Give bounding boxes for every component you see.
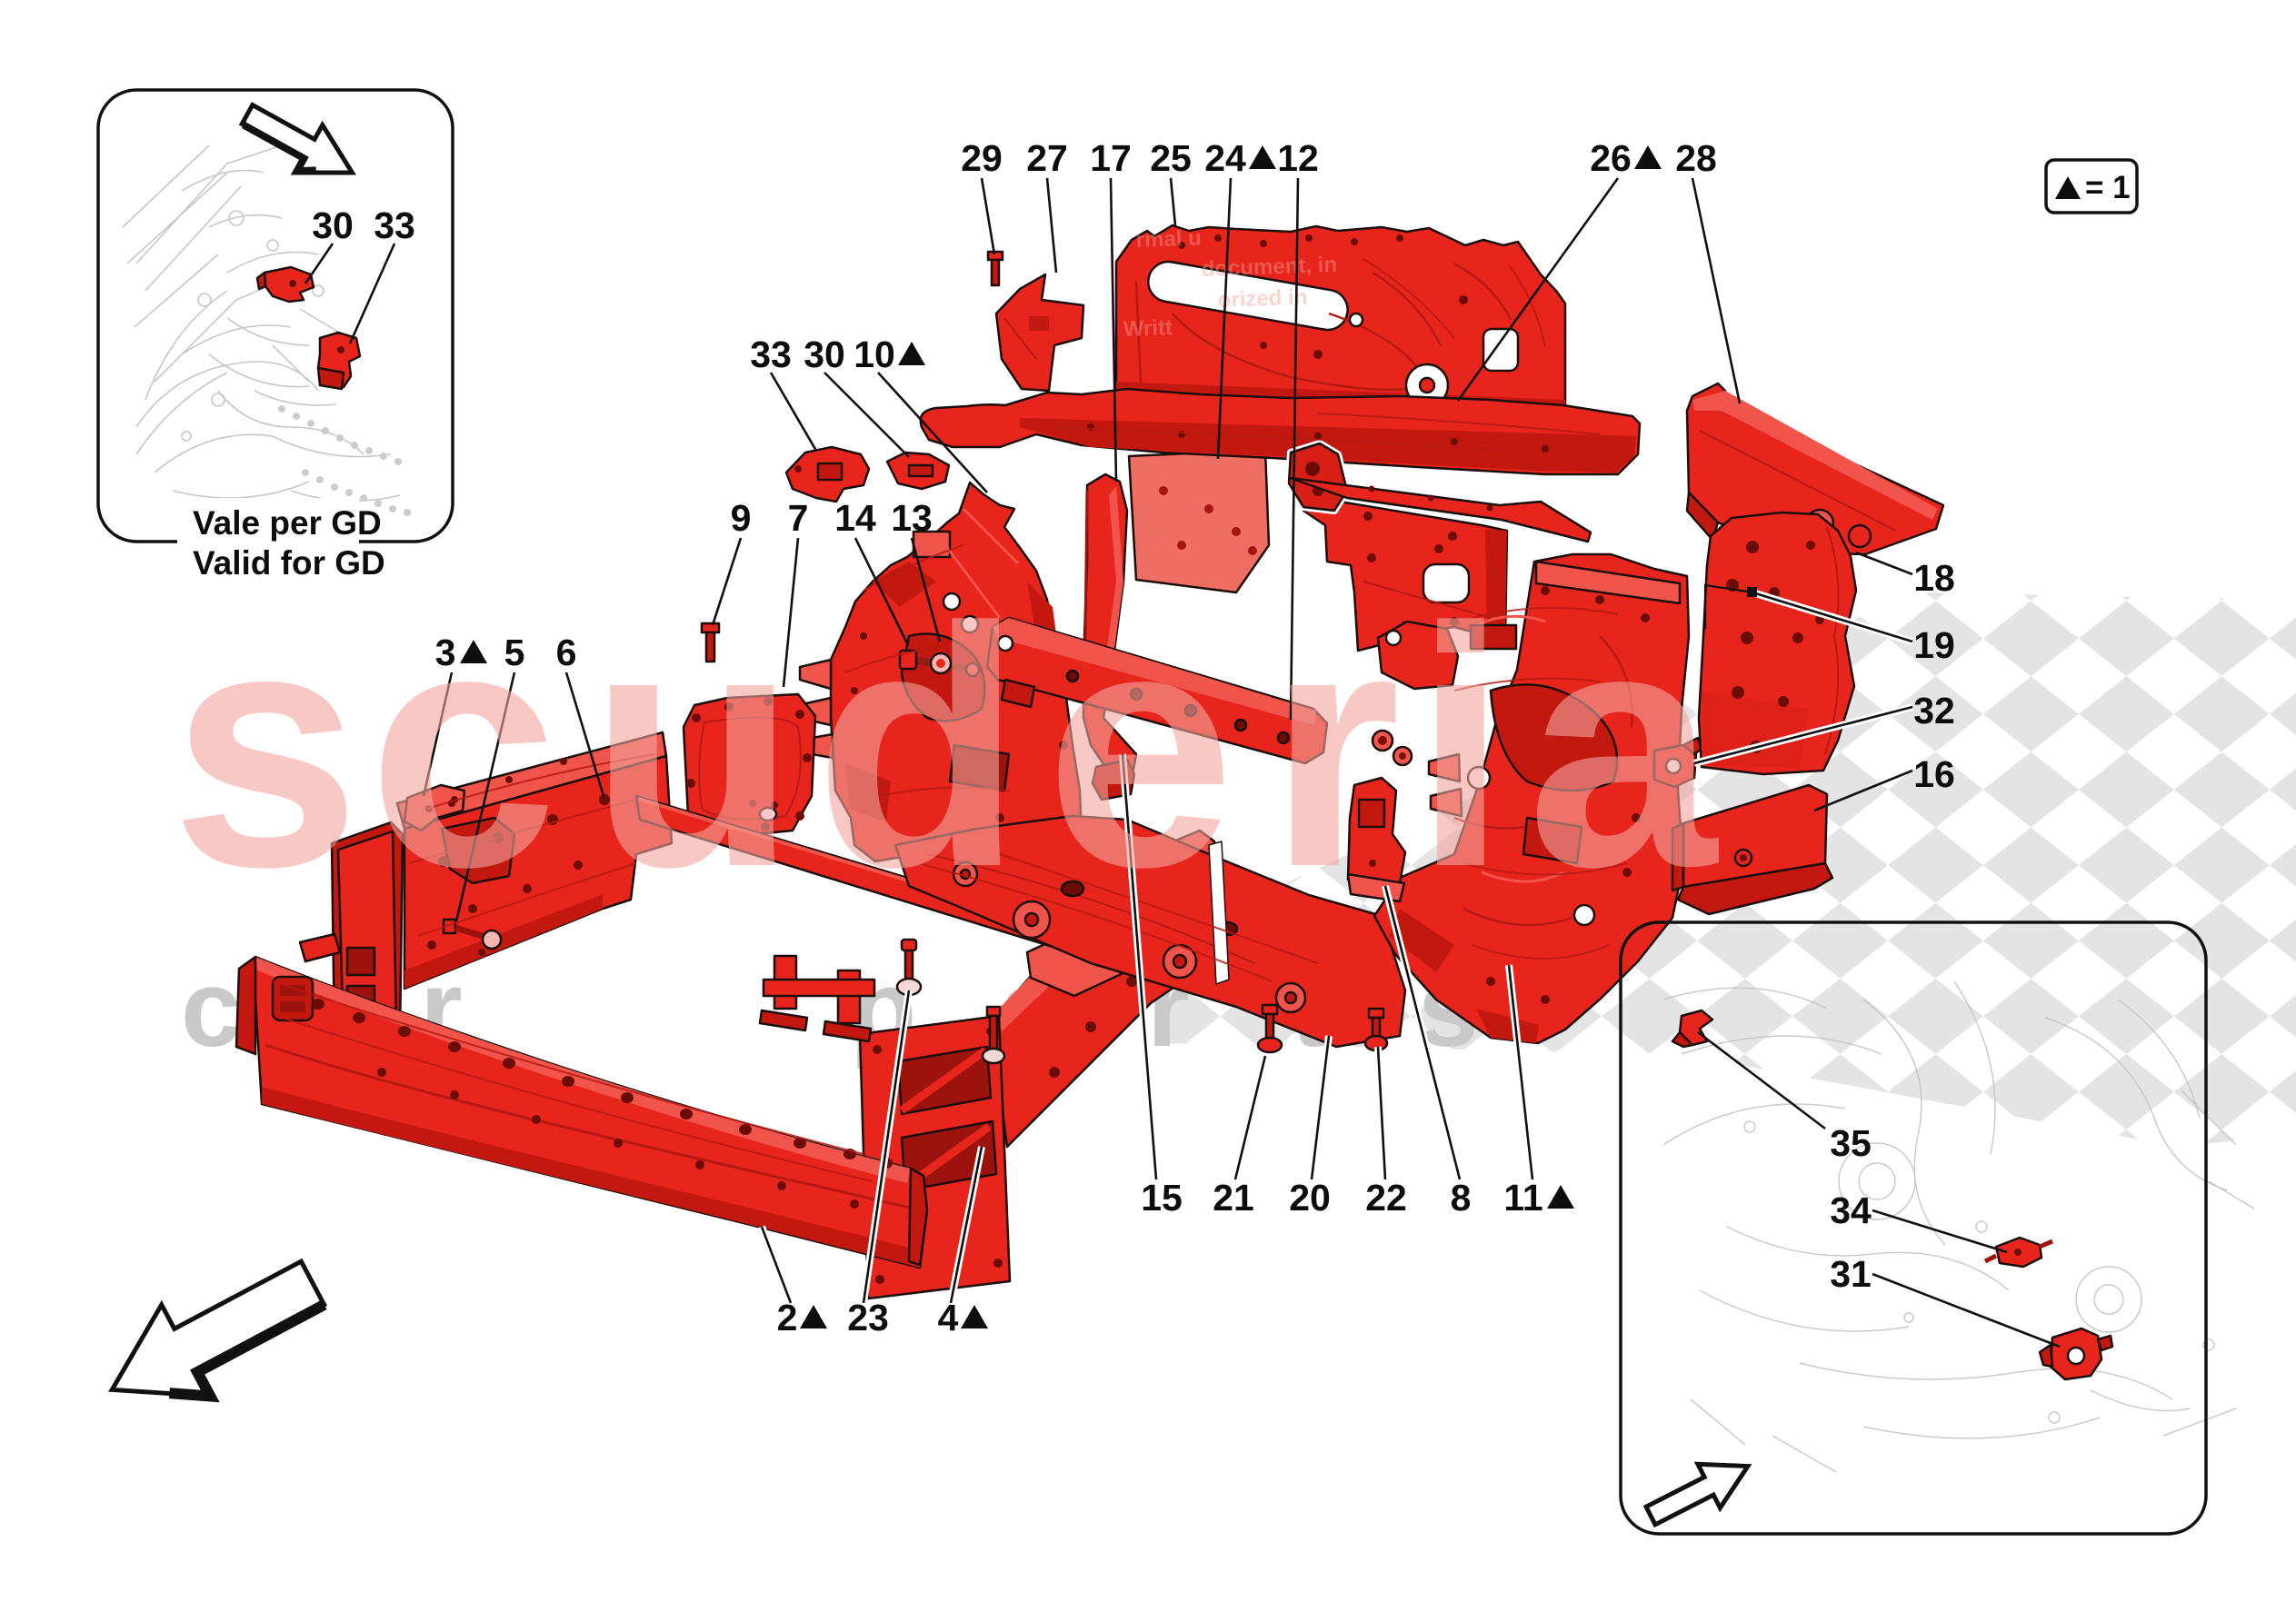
svg-text:15: 15 — [1141, 1177, 1183, 1219]
svg-text:rmal u: rmal u — [1135, 225, 1202, 252]
svg-text:19: 19 — [1913, 624, 1955, 666]
svg-text:32: 32 — [1913, 690, 1955, 731]
svg-text:33: 33 — [374, 204, 415, 246]
svg-text:12: 12 — [1277, 137, 1319, 179]
svg-text:11: 11 — [1503, 1177, 1542, 1219]
svg-text:u: u — [589, 558, 797, 938]
svg-text:= 1: = 1 — [2085, 170, 2131, 205]
svg-text:4: 4 — [938, 1297, 959, 1338]
svg-text:31: 31 — [1830, 1253, 1872, 1295]
svg-text:33: 33 — [750, 333, 792, 375]
svg-text:30: 30 — [804, 333, 845, 375]
svg-text:s: s — [171, 558, 361, 938]
svg-text:35: 35 — [1830, 1122, 1872, 1164]
svg-text:30: 30 — [312, 204, 354, 246]
svg-text:Vale per GD: Vale per GD — [193, 504, 382, 542]
svg-text:17: 17 — [1090, 137, 1132, 179]
svg-text:2: 2 — [777, 1297, 798, 1338]
svg-text:18: 18 — [1913, 557, 1955, 599]
svg-text:document, in: document, in — [1201, 253, 1337, 282]
svg-text:21: 21 — [1213, 1177, 1254, 1219]
svg-text:26: 26 — [1590, 137, 1632, 179]
svg-text:34: 34 — [1830, 1189, 1872, 1231]
svg-text:c: c — [181, 948, 242, 1070]
svg-text:25: 25 — [1150, 137, 1192, 179]
svg-text:24: 24 — [1204, 137, 1246, 179]
svg-text:e: e — [1045, 558, 1235, 938]
svg-text:c: c — [368, 558, 558, 938]
svg-text:orized in: orized in — [1217, 285, 1308, 313]
svg-text:13: 13 — [891, 497, 933, 539]
svg-text:Writt: Writt — [1123, 315, 1173, 342]
svg-text:10: 10 — [854, 333, 895, 375]
svg-text:7: 7 — [788, 497, 809, 539]
svg-text:27: 27 — [1026, 137, 1068, 179]
svg-text:r: r — [1268, 558, 1401, 938]
svg-text:a: a — [1527, 558, 1719, 938]
svg-text:22: 22 — [1365, 1177, 1407, 1219]
svg-text:29: 29 — [961, 137, 1003, 179]
svg-text:9: 9 — [731, 497, 752, 539]
svg-text:8: 8 — [1451, 1177, 1472, 1219]
svg-text:i: i — [1413, 558, 1508, 938]
svg-text:23: 23 — [847, 1297, 889, 1338]
svg-text:6: 6 — [556, 632, 577, 673]
svg-text:14: 14 — [834, 497, 876, 539]
svg-text:16: 16 — [1913, 753, 1955, 795]
svg-text:20: 20 — [1289, 1177, 1331, 1219]
svg-text:28: 28 — [1675, 137, 1717, 179]
svg-text:d: d — [814, 558, 1023, 938]
